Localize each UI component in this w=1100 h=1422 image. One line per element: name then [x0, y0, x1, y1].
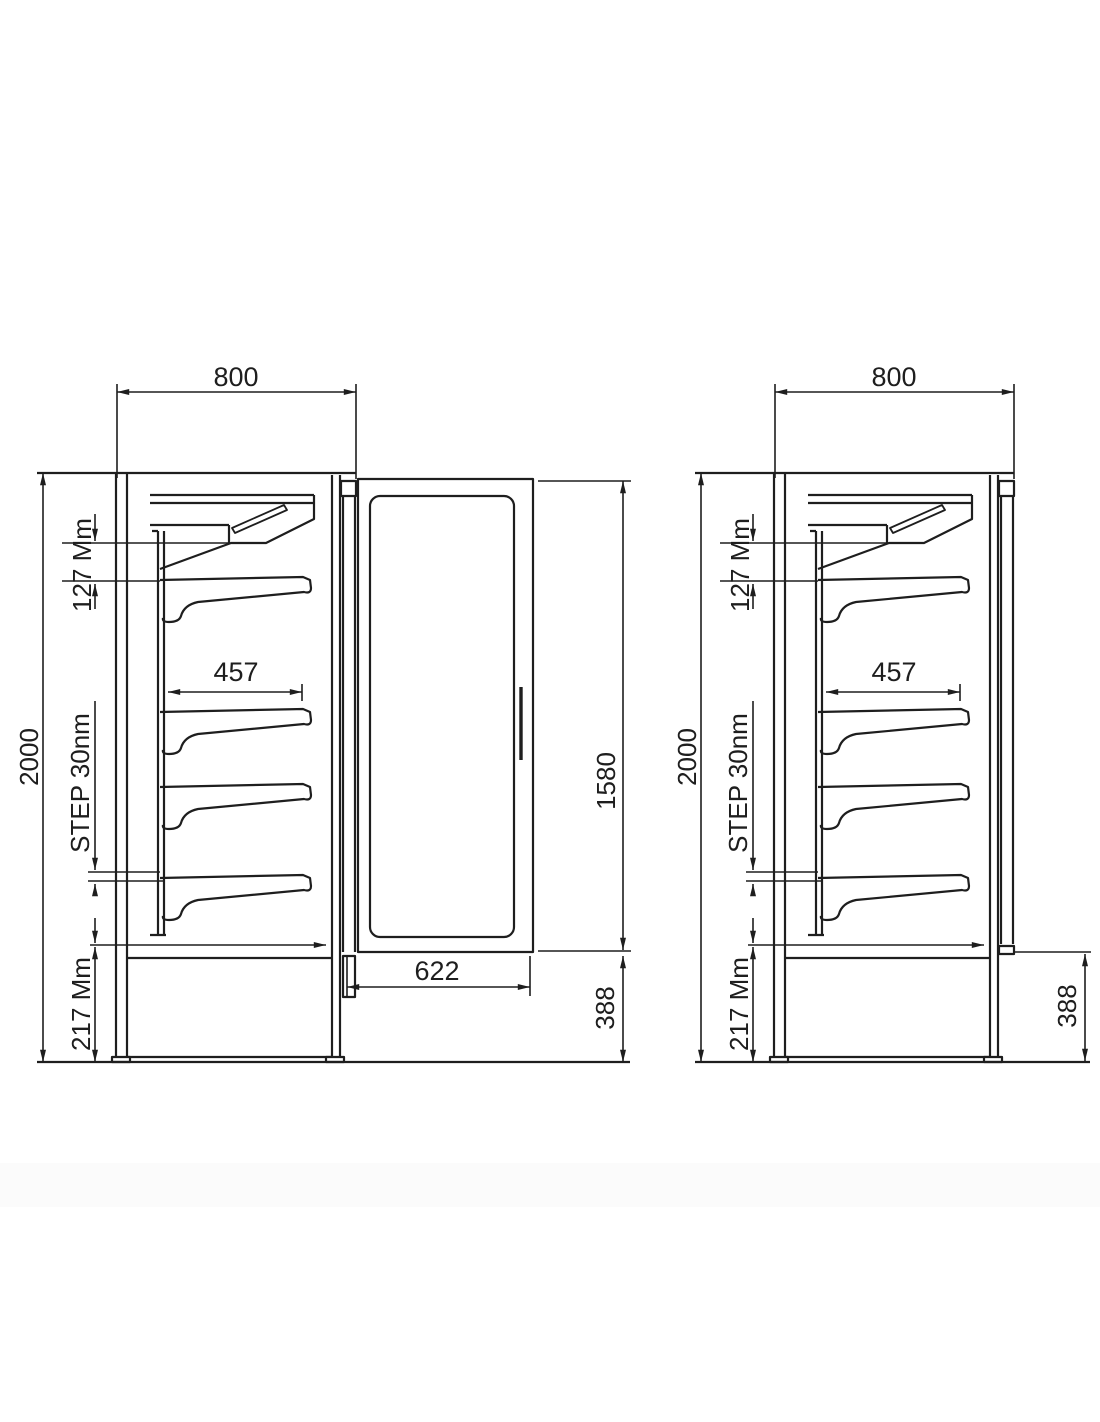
door-glass	[370, 496, 514, 937]
right-door-cap	[999, 481, 1014, 496]
watermark-band	[0, 1163, 1100, 1207]
left-front-wall	[332, 475, 340, 1057]
dim-door-width: 622	[347, 956, 530, 996]
drawing-canvas: 800 2000 127 Mm 457	[0, 0, 1100, 1422]
right-cabinet-view	[672, 362, 1014, 1062]
dim-left-base-front: 388	[590, 956, 623, 1062]
dim-door-height: 1580	[538, 481, 631, 951]
technical-drawing: 800 2000 127 Mm 457	[0, 0, 1100, 1422]
dim-right-base-front: 388	[1015, 952, 1091, 1061]
right-front-wall	[990, 475, 998, 1057]
dim-door-width-label: 622	[414, 956, 459, 986]
open-door	[358, 479, 533, 952]
right-closed-door	[1001, 496, 1013, 944]
left-cabinet-view	[14, 362, 356, 1062]
door-panel	[358, 479, 533, 952]
right-door-bottom-block	[999, 946, 1014, 954]
left-door-frame-bottom	[343, 956, 355, 997]
dim-left-base-front-label: 388	[590, 986, 620, 1029]
left-door-frame-post	[343, 496, 355, 952]
dim-door-height-label: 1580	[591, 752, 621, 810]
left-door-frame-cap	[341, 481, 356, 496]
dim-right-base-front-label: 388	[1052, 984, 1082, 1027]
dim-door-height-extensions	[538, 481, 631, 951]
